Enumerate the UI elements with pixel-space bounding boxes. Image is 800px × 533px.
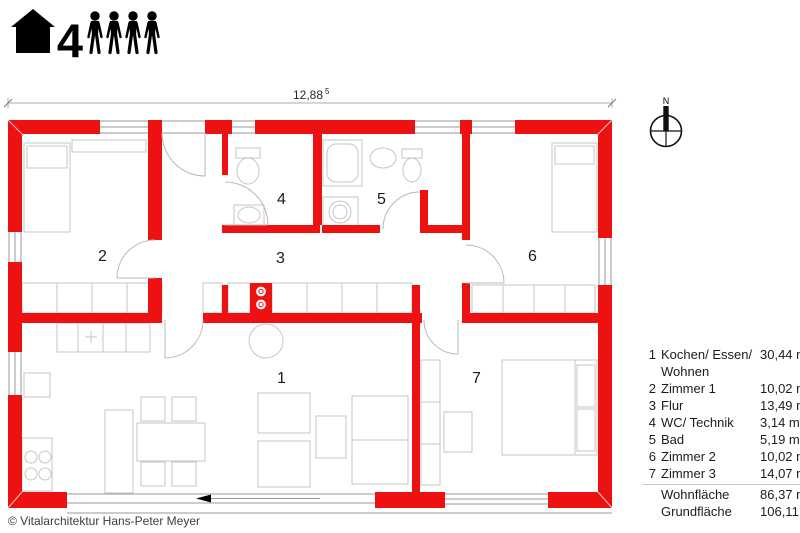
legend-room-number: 1 xyxy=(642,346,656,380)
legend-row: 3 Flur 13,49 m² xyxy=(642,397,800,414)
chimney xyxy=(250,283,272,313)
room7-door xyxy=(424,320,458,354)
legend-total-name: Wohnfläche xyxy=(661,486,755,503)
room-label-2: 2 xyxy=(98,248,107,265)
room-label-3: 3 xyxy=(276,250,285,267)
legend-totals: Wohnfläche 86,37 m² Grundfläche 106,11 m… xyxy=(642,484,800,520)
north-label: N xyxy=(663,96,670,106)
copyright: © Vitalarchitektur Hans-Peter Meyer xyxy=(8,514,200,528)
slide-arrow-icon xyxy=(196,495,211,503)
legend-room-number: 6 xyxy=(642,448,656,465)
legend-room-area: 10,02 m² xyxy=(760,380,800,397)
occupant-count: 4 xyxy=(57,14,83,67)
dimension-line: 12,88 5 xyxy=(4,87,616,108)
dimension-superscript: 5 xyxy=(325,87,330,96)
person-icon xyxy=(127,11,140,52)
legend-room-area: 5,19 m² xyxy=(760,431,800,448)
legend-room-number: 3 xyxy=(642,397,656,414)
legend-total-row: Wohnfläche 86,37 m² xyxy=(642,486,800,503)
legend-room-area: 14,07 m² xyxy=(760,465,800,482)
entrance-door xyxy=(162,133,205,176)
room-label-1: 1 xyxy=(277,370,286,387)
dimension-label: 12,88 xyxy=(293,88,323,102)
legend-room-name: WC/ Technik xyxy=(661,414,755,431)
room6-door xyxy=(466,245,504,283)
legend-row: 6 Zimmer 2 10,02 m² xyxy=(642,448,800,465)
doors xyxy=(117,133,504,358)
legend-room-name: Zimmer 3 xyxy=(661,465,755,482)
room-label-5: 5 xyxy=(377,191,386,208)
legend-total-row: Grundfläche 106,11 m² xyxy=(642,503,800,520)
legend-room-area: 13,49 m² xyxy=(760,397,800,414)
person-icon xyxy=(89,11,102,52)
room2-door xyxy=(117,240,155,278)
person-icon xyxy=(146,11,159,52)
floor-plan-page: { "header": { "occupant_count": "4", "ho… xyxy=(0,0,800,533)
legend-row: 5 Bad 5,19 m² xyxy=(642,431,800,448)
legend-room-number: 5 xyxy=(642,431,656,448)
sliding-door xyxy=(67,494,375,503)
legend-room-area: 3,14 m² xyxy=(760,414,800,431)
legend-room-number: 7 xyxy=(642,465,656,482)
room-label-7: 7 xyxy=(472,370,481,387)
legend-row: 2 Zimmer 1 10,02 m² xyxy=(642,380,800,397)
living-door xyxy=(165,320,203,358)
room-label-4: 4 xyxy=(277,191,286,208)
legend-row: 4 WC/ Technik 3,14 m² xyxy=(642,414,800,431)
house-icon xyxy=(11,9,55,53)
legend-room-area: 10,02 m² xyxy=(760,448,800,465)
legend-room-area: 30,44 m² xyxy=(760,346,800,380)
legend-room-name: Bad xyxy=(661,431,755,448)
room-legend: 1 Kochen/ Essen/ Wohnen 30,44 m² 2 Zimme… xyxy=(642,346,800,520)
north-compass-icon: N xyxy=(651,96,682,147)
legend-total-name: Grundfläche xyxy=(661,503,755,520)
legend-room-name: Zimmer 2 xyxy=(661,448,755,465)
legend-room-name: Zimmer 1 xyxy=(661,380,755,397)
legend-room-name: Flur xyxy=(661,397,755,414)
bath-door xyxy=(383,192,420,229)
room-label-6: 6 xyxy=(528,248,537,265)
legend-total-area: 86,37 m² xyxy=(760,486,800,503)
legend-total-area: 106,11 m² xyxy=(760,503,800,520)
person-icon xyxy=(108,11,121,52)
legend-room-number: 2 xyxy=(642,380,656,397)
legend-row: 1 Kochen/ Essen/ Wohnen 30,44 m² xyxy=(642,346,800,380)
legend-row: 7 Zimmer 3 14,07 m² xyxy=(642,465,800,482)
legend-room-number: 4 xyxy=(642,414,656,431)
legend-room-name: Kochen/ Essen/ Wohnen xyxy=(661,346,755,380)
